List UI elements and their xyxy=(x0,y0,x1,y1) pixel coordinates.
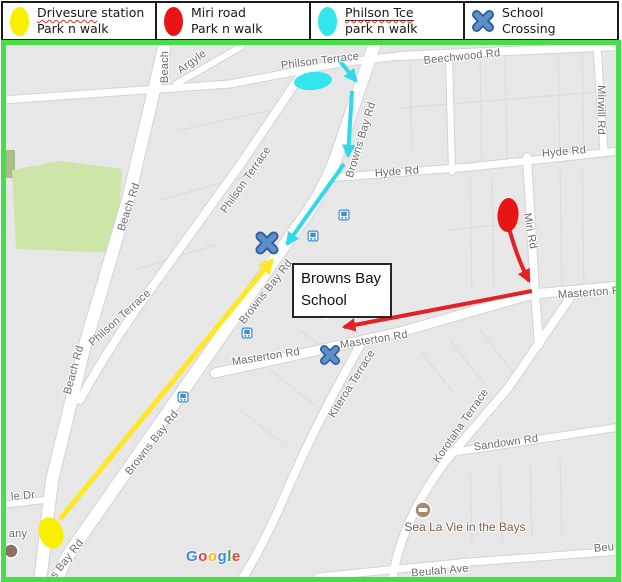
legend-text: School Crossing xyxy=(502,5,556,38)
google-letter: G xyxy=(186,548,198,565)
legend: Drivesure station Park n walk Miri road … xyxy=(1,1,619,41)
legend-item-drivesure: Drivesure station Park n walk xyxy=(3,3,155,39)
legend-rest: Miri road xyxy=(191,5,246,20)
google-letter: o xyxy=(198,548,208,565)
google-letter: o xyxy=(208,548,218,565)
legend-line2: Park n walk xyxy=(191,21,262,37)
legend-term: Philson Tce xyxy=(345,5,414,21)
cyan-ellipse-icon xyxy=(318,7,337,36)
legend-term: Drivesure xyxy=(37,5,97,20)
legend-rest: School xyxy=(502,5,556,21)
google-letter: g xyxy=(218,548,228,565)
legend-item-philson: Philson Tce park n walk xyxy=(309,3,463,39)
legend-item-crossing: School Crossing xyxy=(463,3,617,39)
legend-line2: park n walk xyxy=(345,21,417,37)
legend-text: Miri road Park n walk xyxy=(191,5,262,38)
google-letter: e xyxy=(232,548,241,565)
legend-text: Philson Tce park n walk xyxy=(345,5,417,38)
legend-item-miri: Miri road Park n walk xyxy=(155,3,309,39)
yellow-ellipse-icon xyxy=(10,7,29,36)
red-ellipse-icon xyxy=(164,7,183,36)
park-n-walk-map-page: Drivesure station Park n walk Miri road … xyxy=(0,0,622,582)
google-attribution-logo[interactable]: Google xyxy=(186,548,241,565)
legend-text: Drivesure station Park n walk xyxy=(37,5,144,38)
legend-line2: Crossing xyxy=(502,21,556,37)
legend-rest: station xyxy=(97,5,144,20)
map-frame xyxy=(1,40,621,582)
legend-line2: Park n walk xyxy=(37,21,144,37)
school-crossing-icon xyxy=(472,9,494,33)
